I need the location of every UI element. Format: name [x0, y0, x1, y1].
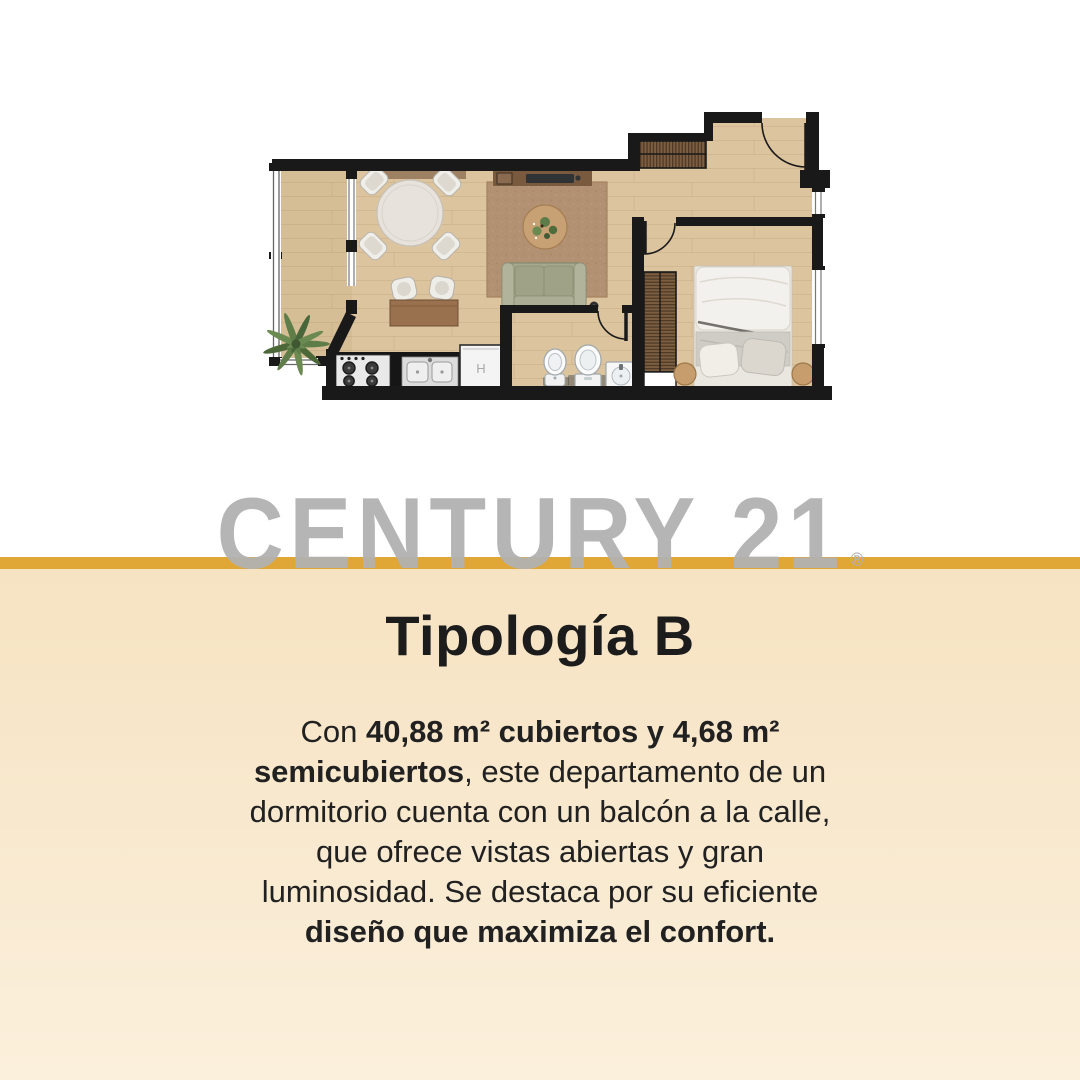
sofa-armrest [502, 263, 514, 309]
sofa-cushion [515, 266, 544, 296]
paragraph-line: luminosidad. Se destaca por su eficiente [210, 872, 870, 912]
floor-plan: H [0, 0, 1080, 560]
wall-bedroom-top [676, 217, 818, 226]
balcony-glass-wall [347, 179, 356, 286]
listing-poster: H [0, 0, 1080, 1080]
bedroom-closet [644, 272, 676, 388]
hall-window [812, 188, 825, 218]
stove-icon [336, 355, 390, 388]
refrigerator-icon: H [460, 345, 502, 389]
double-bed [694, 266, 792, 387]
bedroom-furniture [644, 266, 814, 388]
balcony-railing-window [271, 171, 281, 357]
closet-shelf [644, 372, 676, 388]
wall-bedroom-left [632, 217, 644, 390]
toilet-icon [575, 345, 601, 388]
pillow [740, 338, 787, 377]
wall-bottom [322, 386, 832, 400]
page-title: Tipología B [0, 606, 1080, 666]
sofa-cushion [544, 266, 573, 296]
tv-icon [526, 174, 574, 183]
wall-bathroom-top [500, 305, 598, 313]
desk-chair [428, 275, 455, 301]
brand-watermark: CENTURY 21® [43, 484, 1037, 613]
wall-corner-block [800, 170, 830, 188]
tv-console [493, 171, 592, 186]
desk [390, 300, 458, 326]
plant-leaf [549, 226, 557, 234]
wall-entry-top [704, 112, 762, 123]
entry-floor [704, 118, 814, 188]
double-sink-icon [402, 357, 458, 387]
paragraph-line: Con 40,88 m² cubiertos y 4,68 m² [210, 712, 870, 752]
brand-watermark-text: CENTURY 21 [217, 478, 845, 590]
decor-object [575, 175, 580, 180]
description-paragraph: Con 40,88 m² cubiertos y 4,68 m² semicub… [210, 712, 870, 952]
paragraph-line: que ofrece vistas abiertas y gran [210, 832, 870, 872]
refrigerator-label: H [476, 361, 485, 376]
picture-frame-icon [497, 173, 512, 184]
bidet-icon [544, 349, 566, 386]
paragraph-line: diseño que maximiza el confort. [210, 912, 870, 952]
nightstand [674, 363, 696, 385]
nightstand [792, 363, 814, 385]
wall-top [272, 159, 640, 171]
wall-bathroom-left [500, 305, 512, 390]
round-dining-table [377, 180, 443, 246]
plant-leaf [544, 233, 550, 239]
pillow [698, 342, 739, 378]
wall-right-upper [806, 112, 819, 172]
registered-trademark-icon: ® [851, 510, 864, 611]
sofa [502, 263, 586, 311]
bedroom-window [812, 266, 825, 348]
coffee-table-with-plant [523, 205, 567, 249]
plant-leaf [532, 226, 541, 235]
sofa-armrest [574, 263, 586, 309]
paragraph-line: semicubiertos, este departamento de un [210, 752, 870, 792]
paragraph-line: dormitorio cuenta con un balcón a la cal… [210, 792, 870, 832]
entry-wardrobe [634, 141, 706, 168]
